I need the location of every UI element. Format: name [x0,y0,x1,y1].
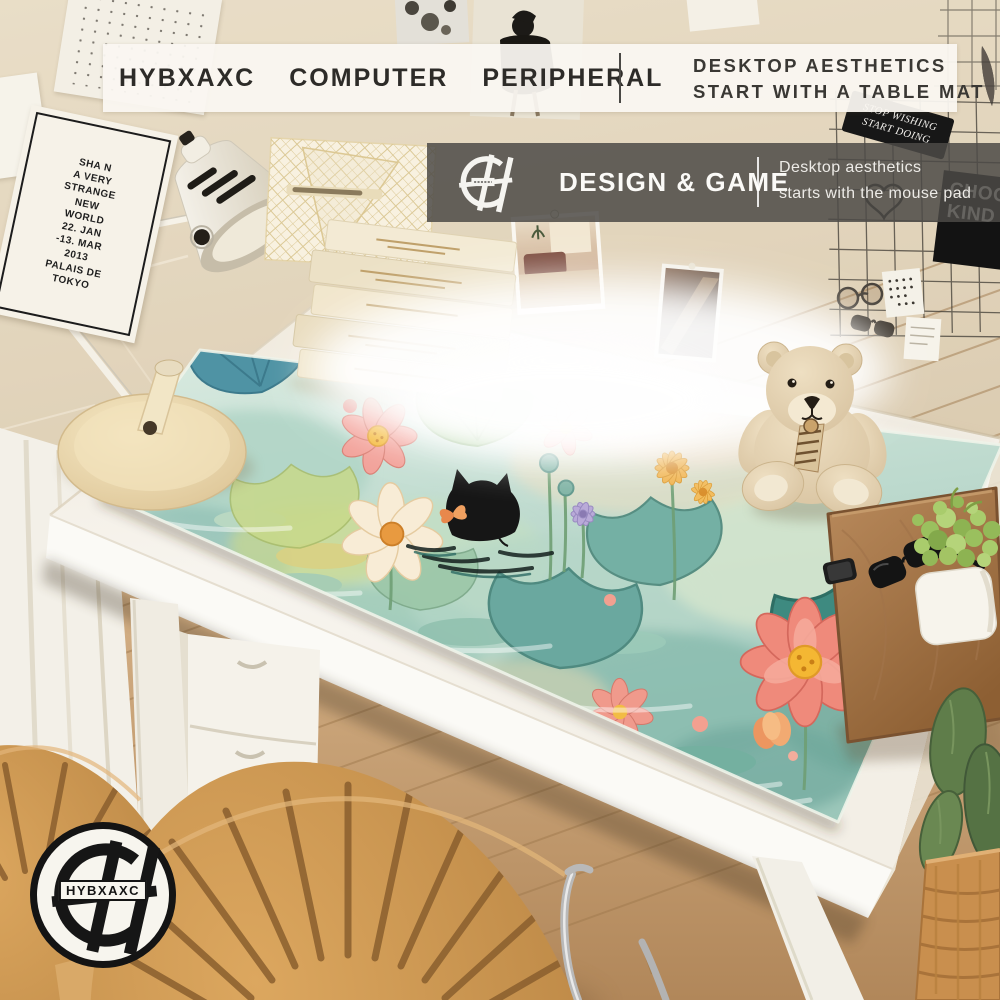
design-game-banner: DESIGN & GAME Desktop aesthetics starts … [427,143,1000,222]
brand-word-3: PERIPHERAL [482,64,663,93]
tagline-line-2: START WITH A TABLE MAT [693,79,985,105]
banner-divider [619,53,621,103]
tagline-line-1: DESKTOP AESTHETICS [693,53,985,79]
pink-bud [692,716,708,732]
mini-calendar-card [882,268,925,318]
banner-title: DESIGN & GAME [559,167,789,198]
brand-words: HYBXAXC COMPUTER PERIPHERAL [119,44,663,112]
product-photo-desk-mat: SHA N A VERY STRANGE NEW WORLD 22. JAN -… [0,0,1000,1000]
corner-brand-logo: HYBXAXC [30,822,176,968]
banner-subtitle: Desktop aesthetics starts with the mouse… [779,155,971,207]
brand-logo-icon [451,148,519,216]
mini-note-card [904,317,942,361]
top-banner: HYBXAXC COMPUTER PERIPHERAL DESKTOP AEST… [103,44,957,112]
banner-tagline: DESKTOP AESTHETICS START WITH A TABLE MA… [693,53,985,105]
brand-word-1: HYBXAXC [119,64,255,93]
brand-word-2: COMPUTER [289,64,448,93]
pink-bud [604,594,616,606]
banner-divider [757,157,759,207]
logo-brand-label: HYBXAXC [59,880,147,901]
pink-bud [788,751,798,761]
